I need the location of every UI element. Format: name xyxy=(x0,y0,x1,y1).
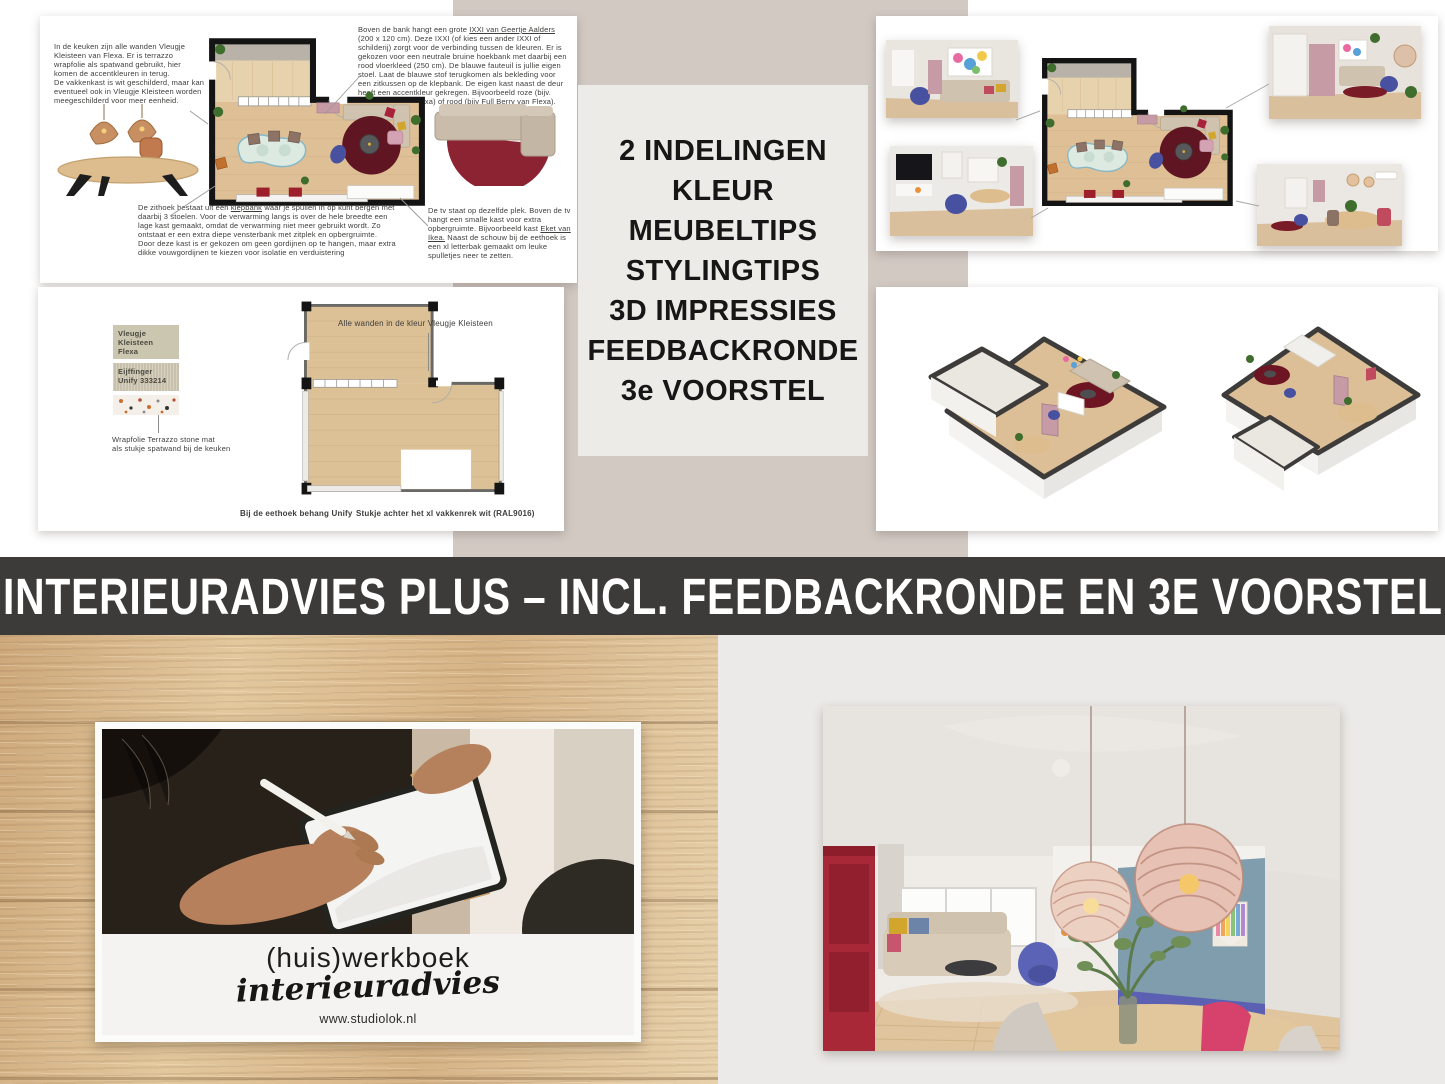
package-item: FEEDBACKRONDE xyxy=(587,331,858,371)
workbook-card: (huis)werkboek interieuradvies www.studi… xyxy=(95,722,641,1042)
workbook-card-titlebar: (huis)werkboek interieuradvies www.studi… xyxy=(102,934,634,1035)
wallpaper-swatch-label: Eijffinger Unify 333214 xyxy=(113,363,179,385)
banner-title: INTERIEURADVIES PLUS – INCL. FEEDBACKRON… xyxy=(3,567,1443,626)
package-item: 2 INDELINGEN xyxy=(619,131,827,171)
seating-note-underlined: klepbank xyxy=(231,203,262,212)
package-item: KLEUR xyxy=(672,171,774,211)
slide-color-plan: Vleugje Kleisteen Flexa Eijffinger Unify… xyxy=(38,287,564,531)
tv-note-text: De tv staat op dezelfde plek. Boven de t… xyxy=(428,206,576,260)
package-item: STYLINGTIPS xyxy=(626,251,821,291)
rattan-pendant-lamp-icon xyxy=(1135,824,1243,932)
slide-3d-impressions xyxy=(876,287,1438,531)
seating-note-text: De zithoek bestaat uit een klepbank waar… xyxy=(138,203,396,257)
sofa-note-underlined: IXXI van Geertje Aalders xyxy=(469,25,555,34)
slide-render-callouts xyxy=(876,16,1438,251)
package-item: 3e VOORSTEL xyxy=(621,371,825,411)
floor-plan-top-view-small xyxy=(1034,50,1239,214)
render-photo-livingroom xyxy=(886,40,1018,118)
kitchen-note-text: In de keuken zijn alle wanden Vleugje Kl… xyxy=(54,42,206,105)
walls-annotation: Alle wanden in de kleur Vleugje Kleistee… xyxy=(338,319,548,328)
wallpaper-swatch-unify: Eijffinger Unify 333214 xyxy=(113,363,179,391)
slide-advice-floorplan: In de keuken zijn alle wanden Vleugje Kl… xyxy=(40,16,577,283)
title-banner: INTERIEURADVIES PLUS – INCL. FEEDBACKRON… xyxy=(0,557,1445,635)
caption-shelf-white: Stukje achter het xl vakkenrek wit (RAL9… xyxy=(356,509,556,518)
tv-note-post: Naast de schouw bij de eethoek is een xl… xyxy=(428,233,566,260)
iso-dollhouse-left xyxy=(894,297,1212,521)
package-contents-box: 2 INDELINGEN KLEUR MEUBELTIPS STYLINGTIP… xyxy=(578,85,868,456)
promo-collage: In de keuken zijn alle wanden Vleugje Kl… xyxy=(0,0,1445,1084)
paint-swatch-kleisteen: Vleugje Kleisteen Flexa xyxy=(113,325,179,359)
workbook-website: www.studiolok.nl xyxy=(319,1012,416,1026)
sofa-and-rug-illustration xyxy=(429,94,565,186)
seating-note-pre: De zithoek bestaat uit een xyxy=(138,203,231,212)
render-photo-kitchen-view xyxy=(1269,26,1421,119)
dining-set-illustration xyxy=(52,104,204,198)
interior-render-photo xyxy=(823,706,1340,1051)
iso-dollhouse-right xyxy=(1206,301,1428,519)
workbook-card-photo xyxy=(102,729,634,934)
paint-swatch-label: Vleugje Kleisteen Flexa xyxy=(113,325,179,356)
render-photo-dining xyxy=(1257,164,1402,246)
package-item: MEUBELTIPS xyxy=(629,211,818,251)
package-item: 3D IMPRESSIES xyxy=(609,291,837,331)
walls-annotation-line xyxy=(428,333,429,371)
terrazzo-pointer-line xyxy=(158,415,159,433)
render-photo-tv-corner xyxy=(890,146,1033,236)
terrazzo-swatch xyxy=(113,395,179,415)
rattan-pendant-lamp-icon xyxy=(1051,862,1131,942)
seating-note-post: waar je spullen in op kunt bergen met da… xyxy=(138,203,396,257)
workbook-subtitle: interieuradvies xyxy=(236,968,501,1008)
floor-plan-top-view xyxy=(200,30,432,214)
